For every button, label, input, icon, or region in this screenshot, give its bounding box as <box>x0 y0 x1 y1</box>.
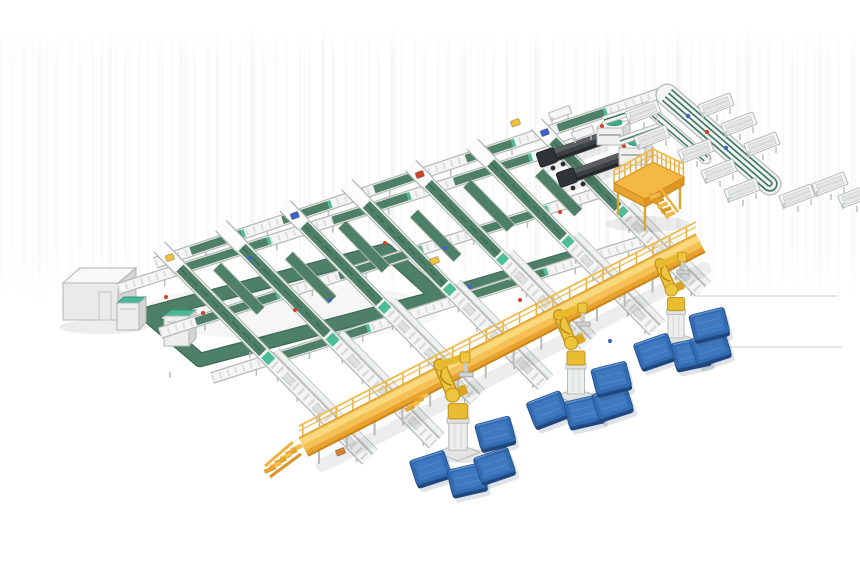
robot-pedestal <box>568 368 585 394</box>
tray-station <box>721 112 757 140</box>
industrial-system-render <box>0 0 860 580</box>
sensor-dot <box>608 339 612 343</box>
check-machine <box>117 297 146 330</box>
sensor-dot <box>468 285 472 289</box>
parcel-dot <box>686 114 690 118</box>
walkway-stairs <box>265 442 303 477</box>
package <box>510 118 521 127</box>
sensor-dot <box>443 246 447 250</box>
robot-pedestal <box>449 422 467 450</box>
status-light <box>600 124 604 128</box>
tray-station <box>698 93 734 121</box>
sensor-dot <box>383 241 387 245</box>
robot-gripper <box>677 270 689 274</box>
sensor-dot <box>558 210 562 214</box>
sensor-dot <box>248 256 252 260</box>
tray-station <box>838 184 860 212</box>
tray-station <box>744 132 780 160</box>
sensor-dot <box>164 295 168 299</box>
sensor-dot <box>518 298 522 302</box>
robot-pedestal <box>668 313 684 337</box>
sortation-system-scene <box>0 0 860 580</box>
tray-station <box>779 184 815 212</box>
sensor-dot <box>328 298 332 302</box>
robot-gripper <box>459 372 473 376</box>
parcel-dot <box>705 130 709 134</box>
parcel-dot <box>724 146 728 150</box>
sensor-dot <box>201 311 205 315</box>
tray-station <box>724 178 760 206</box>
package <box>429 256 440 265</box>
robot-gripper <box>577 322 590 326</box>
sensor-dot <box>293 308 297 312</box>
